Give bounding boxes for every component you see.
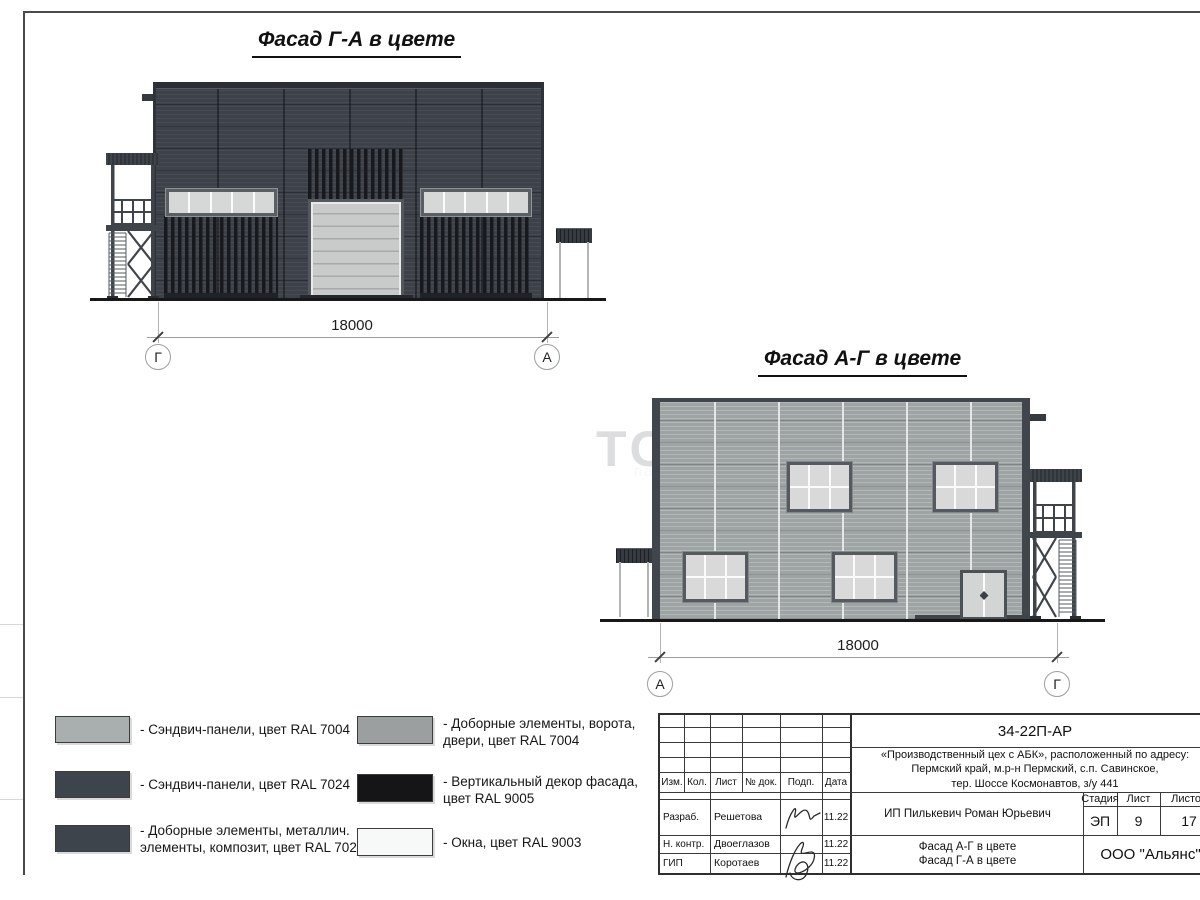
- window-pane: [706, 555, 724, 576]
- tb-drawing-name: Фасад А-Г в цвете Фасад Г-А в цвете: [852, 835, 1083, 873]
- window-pane: [855, 555, 873, 576]
- tb-signer-date: 11.22: [822, 835, 850, 853]
- legend-swatch-ral7004-panels: [55, 716, 130, 743]
- canopy-post: [619, 562, 621, 617]
- dimension-line: [147, 337, 559, 338]
- window-pane: [212, 192, 231, 213]
- tb-header-doc: № док.: [742, 772, 780, 792]
- facade2-window-lower-left: [683, 552, 748, 602]
- facade2-corner-trim-left: [652, 398, 660, 620]
- window-pane: [686, 555, 704, 576]
- tb-header-sheet: Лист: [1117, 792, 1160, 806]
- margin-divider: [0, 624, 23, 625]
- tb-grid-line: [710, 715, 711, 873]
- window-pane: [727, 578, 745, 599]
- window-pane: [936, 488, 954, 509]
- window-pane: [977, 465, 995, 486]
- window-pane: [727, 555, 745, 576]
- window-pane: [835, 578, 853, 599]
- tb-doc-code: 34-22П-АР: [852, 715, 1200, 747]
- tb-client: ИП Пилькевич Роман Юрьевич: [852, 792, 1083, 835]
- window-pane: [977, 488, 995, 509]
- facade1-parapet: [153, 82, 544, 89]
- tb-sheet-number: 9: [1117, 806, 1160, 835]
- facade2-ground-line: [600, 619, 1105, 622]
- tb-signer-date: 11.22: [822, 799, 850, 835]
- facade2-window-lower-center: [832, 552, 897, 602]
- legend-label: - Доборные элементы, металлич. элементы,…: [140, 820, 364, 858]
- canopy-post: [559, 242, 561, 298]
- facade1-ground-line: [90, 298, 606, 301]
- facade1-axis-right: А: [534, 344, 560, 370]
- legend-swatch-ral9005: [357, 774, 433, 802]
- window-pane: [876, 578, 894, 599]
- facade2-entrance-canopy: [616, 548, 652, 563]
- tb-project-line2: Пермский край, м.р-н Пермский, с.п. Сави…: [911, 762, 1158, 777]
- tb-project-name: «Производственный цех с АБК», расположен…: [852, 747, 1200, 792]
- frame-top-line: [23, 11, 1200, 13]
- window-pane: [706, 578, 724, 599]
- facade1-sectional-gate: [308, 199, 404, 300]
- window-pane: [835, 555, 853, 576]
- window-pane: [810, 465, 828, 486]
- facade2-dimension-value: 18000: [758, 637, 958, 654]
- facade2-parapet: [652, 398, 1030, 402]
- tb-grid-line: [660, 727, 850, 728]
- facade2-parapet-flag: [1030, 414, 1046, 421]
- facade2-stair-tower: [1028, 467, 1084, 622]
- facade1-axis-left: Г: [145, 344, 171, 370]
- facade2-double-door: [960, 570, 1007, 620]
- window-pane: [810, 488, 828, 509]
- tb-signer-date: 11.22: [822, 853, 850, 873]
- tb-header-data: Дата: [822, 772, 850, 792]
- facade1-stair-tower: [103, 151, 163, 302]
- tb-header-list: Лист: [710, 772, 742, 792]
- facade2-title: Фасад А-Г в цвете: [758, 347, 967, 377]
- window-pane: [233, 192, 252, 213]
- legend-swatch-ral7024-panels: [55, 771, 130, 798]
- tb-header-sheets: Листов: [1160, 792, 1200, 806]
- tb-project-line3: тер. Шоссе Космонавтов, з/у 441: [951, 777, 1118, 792]
- facade2-window-upper-left: [787, 462, 852, 512]
- legend-swatch-ral9003: [357, 828, 433, 856]
- legend-label: - Сэндвич-панели, цвет RAL 7004: [140, 716, 350, 743]
- tb-stage-value: ЭП: [1083, 806, 1117, 835]
- drawing-sheet: Фасад Г-А в цвете: [0, 0, 1200, 900]
- tb-signer-role: Разраб.: [663, 799, 710, 835]
- tb-header-podp: Подп.: [780, 772, 822, 792]
- window-pane: [488, 192, 507, 213]
- facade1-vertical-decor-left: [164, 216, 278, 293]
- window-pane: [831, 465, 849, 486]
- facade1-ribbon-window-right: [421, 189, 531, 216]
- window-pane: [855, 578, 873, 599]
- facade1-ribbon-window-left: [166, 189, 277, 216]
- legend-label: - Доборные элементы, ворота, двери, цвет…: [443, 713, 635, 751]
- window-pane: [190, 192, 209, 213]
- window-pane: [936, 465, 954, 486]
- signature-scribble: [778, 800, 824, 836]
- facade2-window-upper-right: [933, 462, 998, 512]
- margin-divider: [0, 799, 23, 800]
- door-leaf: [963, 573, 983, 617]
- window-pane: [686, 578, 704, 599]
- frame-left-line: [23, 11, 25, 875]
- tb-project-line1: «Производственный цех с АБК», расположен…: [881, 748, 1189, 763]
- facade2-axis-left: А: [647, 671, 673, 697]
- window-pane: [466, 192, 485, 213]
- tb-signer-role: Н. контр.: [663, 835, 710, 853]
- canopy-post: [647, 562, 649, 617]
- title-block: Изм. Кол. Лист № док. Подп. Дата Разраб.…: [658, 713, 1200, 875]
- dimension-line: [648, 657, 1069, 658]
- tb-grid-line: [660, 742, 850, 743]
- tb-header-izm: Изм.: [660, 772, 684, 792]
- tb-grid-line: [660, 757, 850, 758]
- legend-swatch-ral7024-elements: [55, 825, 130, 852]
- facade1-corner-trim-right: [541, 82, 544, 300]
- tb-signer-role: ГИП: [663, 853, 710, 873]
- tb-signer-name: Решетова: [714, 799, 780, 835]
- window-pane: [956, 465, 974, 486]
- window-pane: [424, 192, 443, 213]
- facade1-building: [153, 82, 544, 300]
- tb-signer-name: Двоеглазов: [714, 835, 780, 853]
- window-pane: [445, 192, 464, 213]
- legend-label: - Окна, цвет RAL 9003: [443, 828, 581, 856]
- facade1-vertical-decor-right: [420, 216, 532, 293]
- tb-signer-name: Коротаев: [714, 853, 780, 873]
- facade2-building: [652, 398, 1030, 620]
- legend-label: - Сэндвич-панели, цвет RAL 7024: [140, 771, 350, 798]
- facade1-vertical-decor-center: [308, 149, 404, 199]
- facade1-dimension-value: 18000: [252, 317, 452, 334]
- tb-sheets-total: 17: [1160, 806, 1200, 835]
- tb-header-stage: Стадия: [1083, 792, 1117, 806]
- tb-company: ООО "Альянс": [1083, 835, 1200, 873]
- window-pane: [169, 192, 188, 213]
- window-pane: [876, 555, 894, 576]
- window-pane: [790, 488, 808, 509]
- legend-swatch-ral7004-elements: [357, 716, 433, 744]
- window-pane: [509, 192, 528, 213]
- canopy-post: [587, 242, 589, 298]
- window-pane: [790, 465, 808, 486]
- window-pane: [255, 192, 274, 213]
- facade1-title: Фасад Г-А в цвете: [252, 28, 461, 58]
- window-pane: [831, 488, 849, 509]
- tb-header-kol: Кол.: [684, 772, 710, 792]
- signature-scribble: [776, 833, 824, 885]
- legend-label: - Вертикальный декор фасада, цвет RAL 90…: [443, 771, 638, 809]
- window-pane: [956, 488, 974, 509]
- facade2-axis-right: Г: [1044, 671, 1070, 697]
- facade1-entrance-canopy: [556, 228, 592, 243]
- margin-divider: [0, 697, 23, 698]
